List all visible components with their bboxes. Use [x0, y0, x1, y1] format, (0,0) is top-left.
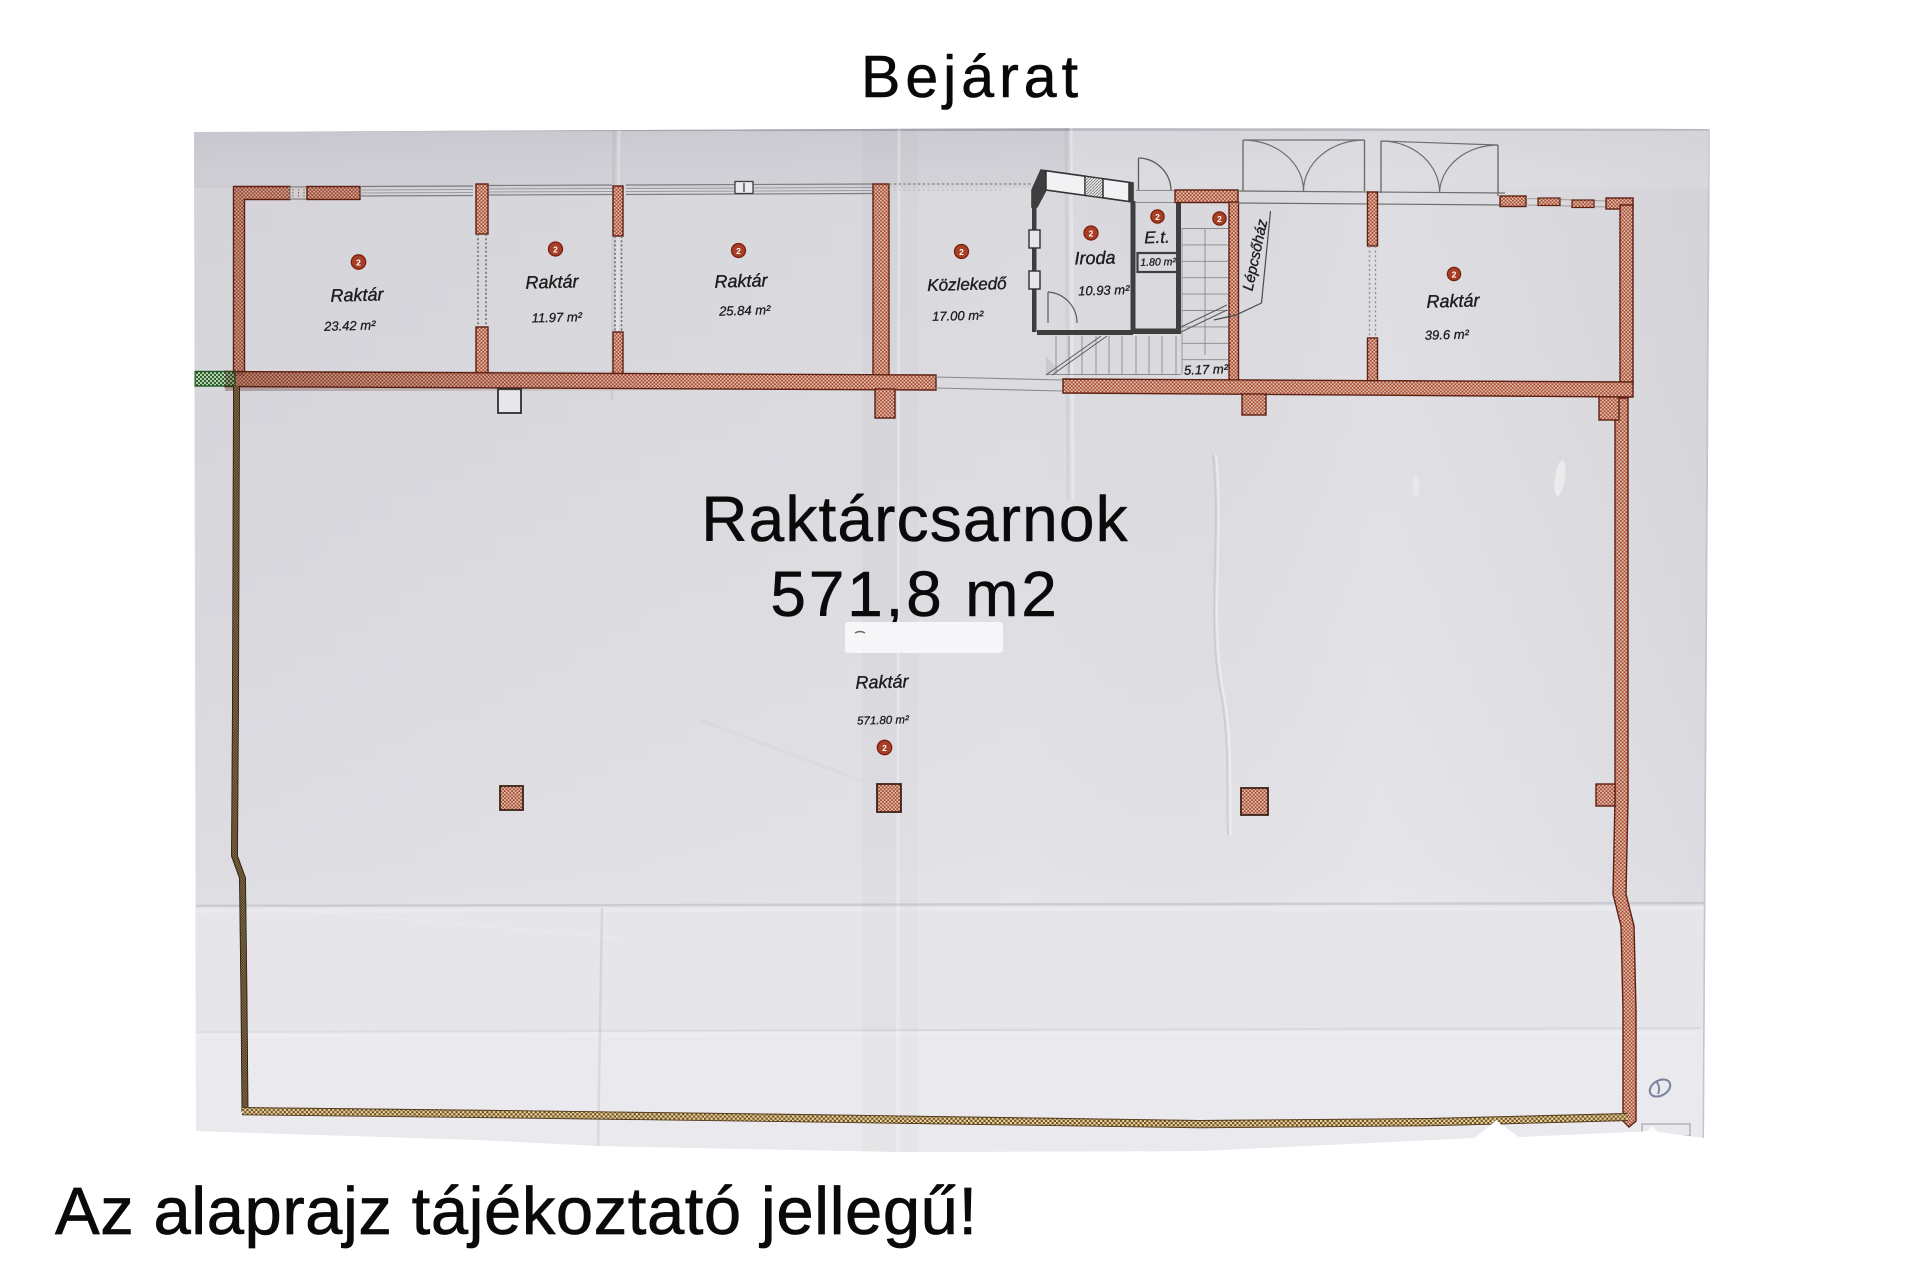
svg-text:2: 2 [1217, 214, 1222, 224]
svg-text:11.97 m²: 11.97 m² [531, 309, 582, 325]
svg-text:10.93 m²: 10.93 m² [1078, 282, 1130, 298]
svg-text:2: 2 [736, 246, 741, 256]
svg-text:2: 2 [1089, 229, 1094, 239]
svg-text:Raktár: Raktár [330, 284, 385, 305]
svg-text:5.17 m²: 5.17 m² [1184, 361, 1229, 378]
svg-text:571,8 m2: 571,8 m2 [770, 558, 1059, 630]
svg-text:2: 2 [882, 743, 887, 753]
svg-text:Iroda: Iroda [1074, 247, 1116, 268]
svg-text:25.84 m²: 25.84 m² [718, 302, 771, 318]
svg-text:23.42 m²: 23.42 m² [323, 318, 376, 334]
svg-text:2: 2 [356, 258, 361, 268]
svg-text:2: 2 [959, 247, 964, 257]
svg-text:Raktár: Raktár [525, 271, 580, 292]
svg-text:1.80 m²: 1.80 m² [1140, 256, 1176, 269]
svg-text:Raktár: Raktár [714, 270, 769, 291]
svg-text:571.80 m²: 571.80 m² [857, 714, 910, 727]
svg-text:Raktárcsarnok: Raktárcsarnok [701, 483, 1129, 555]
svg-text:Bejárat: Bejárat [861, 44, 1083, 110]
svg-text:39.6 m²: 39.6 m² [1425, 327, 1470, 343]
svg-text:2: 2 [1155, 212, 1160, 222]
svg-text:Közlekedő: Közlekedő [927, 274, 1007, 295]
svg-text:2: 2 [553, 245, 558, 255]
svg-text:Raktár: Raktár [855, 671, 910, 692]
svg-text:Az alaprajz tájékoztató jelleg: Az alaprajz tájékoztató jellegű! [55, 1174, 978, 1249]
svg-text:Raktár: Raktár [1426, 290, 1481, 311]
svg-text:2: 2 [1452, 270, 1457, 280]
svg-text:E.t.: E.t. [1144, 228, 1170, 248]
svg-text:17.00 m²: 17.00 m² [932, 308, 984, 324]
